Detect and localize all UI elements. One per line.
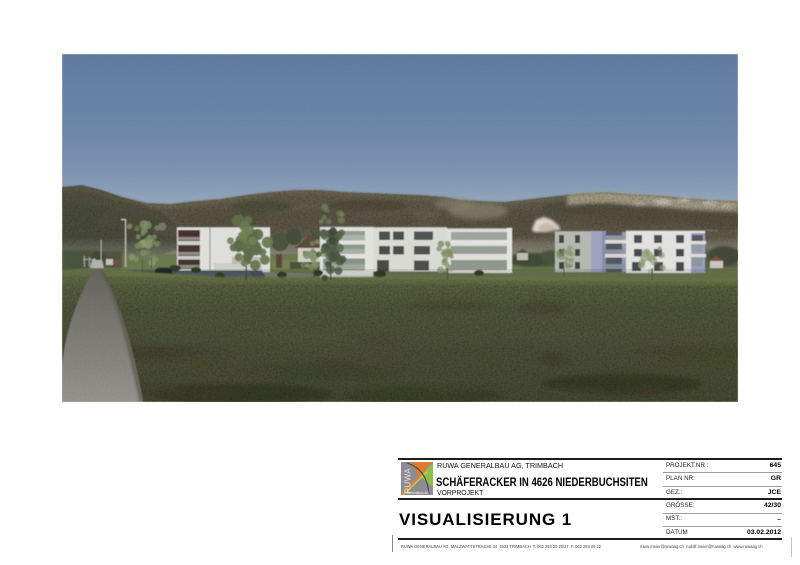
svg-text:RUWA: RUWA — [404, 468, 413, 494]
svg-text:Generalbau AG: Generalbau AG — [407, 491, 429, 495]
